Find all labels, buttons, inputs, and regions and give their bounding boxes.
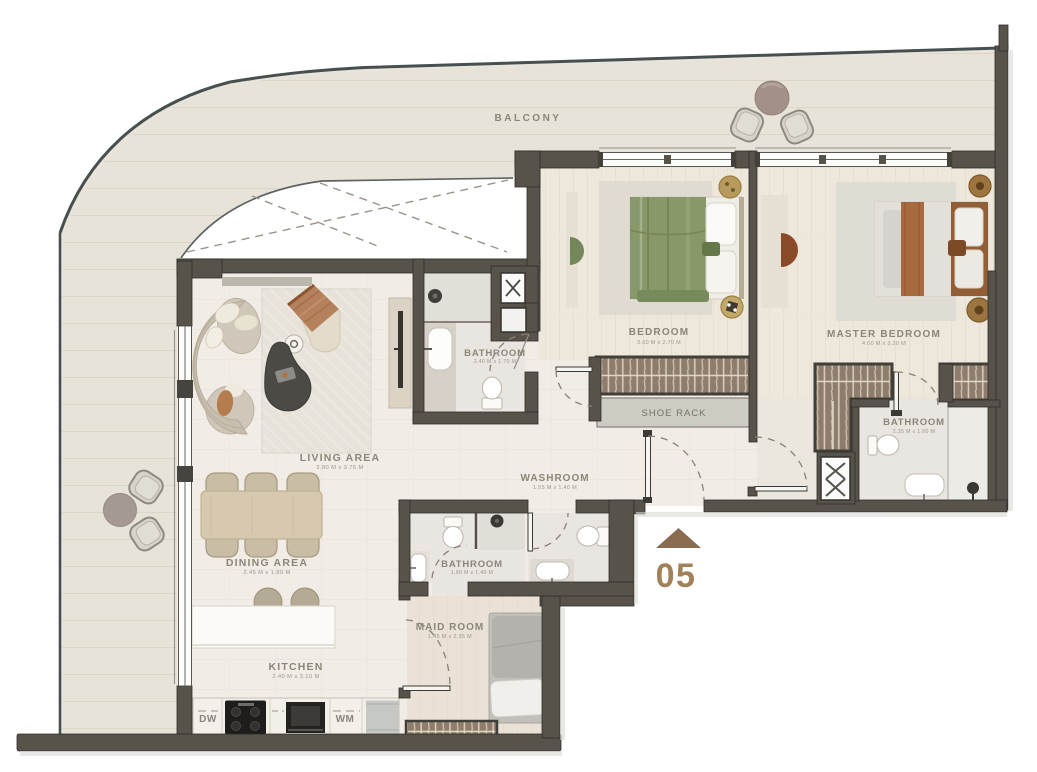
svg-text:KITCHEN: KITCHEN xyxy=(268,661,323,673)
svg-text:DW: DW xyxy=(199,714,217,725)
svg-text:MAID ROOM: MAID ROOM xyxy=(416,622,484,633)
svg-text:2.45 M x 1.80 M: 2.45 M x 1.80 M xyxy=(243,570,291,576)
svg-text:2.35 M x 1.60 M: 2.35 M x 1.60 M xyxy=(893,429,935,435)
svg-text:MASTER BEDROOM: MASTER BEDROOM xyxy=(827,329,941,340)
svg-text:1.80 M x 1.40 M: 1.80 M x 1.40 M xyxy=(451,570,493,576)
svg-text:1.55 M x 1.40 M: 1.55 M x 1.40 M xyxy=(533,485,577,491)
svg-text:2.40 M x 1.70 M: 2.40 M x 1.70 M xyxy=(474,359,516,365)
svg-text:WASHROOM: WASHROOM xyxy=(520,473,589,484)
svg-text:DINING AREA: DINING AREA xyxy=(226,557,308,569)
svg-text:05: 05 xyxy=(656,557,697,595)
svg-text:BATHROOM: BATHROOM xyxy=(883,417,945,428)
svg-text:LIVING AREA: LIVING AREA xyxy=(300,452,380,464)
svg-text:BATHROOM: BATHROOM xyxy=(464,348,526,359)
svg-text:WM: WM xyxy=(336,714,355,725)
svg-text:BEDROOM: BEDROOM xyxy=(629,327,690,338)
svg-text:4.00 M x 3.20 M: 4.00 M x 3.20 M xyxy=(862,341,906,347)
svg-text:BALCONY: BALCONY xyxy=(495,113,562,124)
svg-text:SHOE RACK: SHOE RACK xyxy=(642,408,707,419)
svg-text:1.45 M x 2.35 M: 1.45 M x 2.35 M xyxy=(428,634,472,640)
svg-text:3.80 M x 3.75 M: 3.80 M x 3.75 M xyxy=(316,465,364,471)
svg-text:2.40 M x 3.10 M: 2.40 M x 3.10 M xyxy=(272,674,320,680)
svg-text:3.60 M x 2.70 M: 3.60 M x 2.70 M xyxy=(637,340,681,346)
svg-text:BATHROOM: BATHROOM xyxy=(441,559,503,570)
